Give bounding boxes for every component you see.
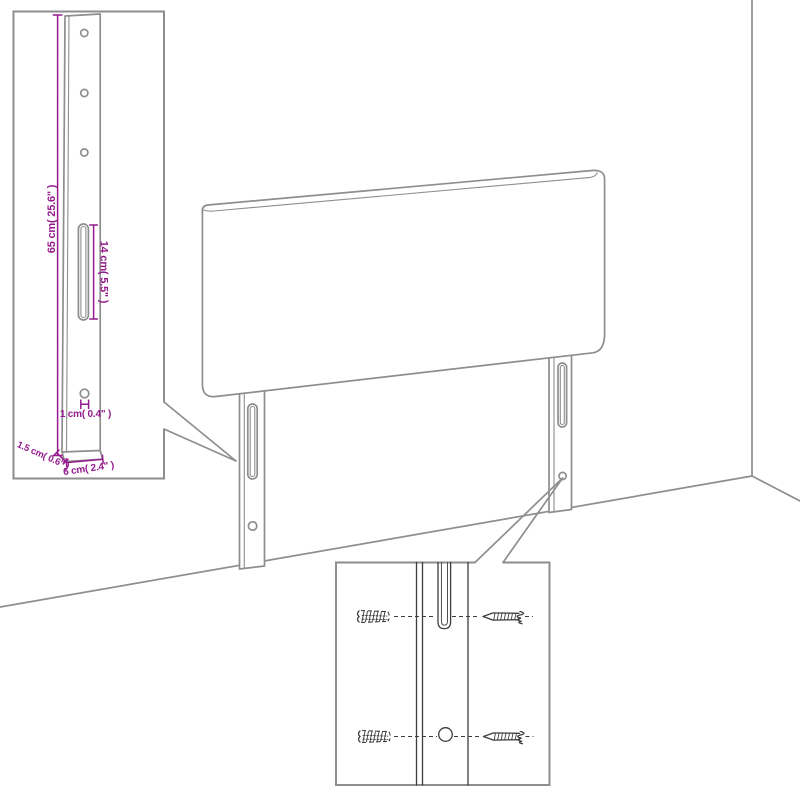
mount-slot-outline [438,563,451,629]
dimension-width: 6 cm( 2.4" ) [63,455,115,478]
panel-outline [202,170,604,396]
mount-hole [439,728,453,742]
height-label: 65 cm( 25.6" ) [46,184,58,253]
headboard-left-leg [240,384,265,569]
dimension-leg-height: 65 cm( 25.6" ) [46,15,62,456]
inset-leg-hole-2 [81,89,88,96]
inset-leg-drawing [62,14,103,462]
mount-detail-inset [336,563,550,786]
diagram-canvas: 65 cm( 25.6" ) 14 cm( 5.5" ) 1 cm( 0.4" … [0,0,800,800]
right-callout-wedge [475,478,563,563]
left-callout-wedge [164,402,236,461]
headboard-panel [202,170,604,396]
inset-leg-slot [78,224,88,320]
inset-leg-slot-inner [81,227,86,318]
mount-slot-inner-outline [441,563,447,626]
inset-leg-hole-3 [81,149,88,156]
wall-corner-line [752,0,800,501]
hole-dimension-bracket [81,400,89,410]
wall-plug-bottom [359,731,391,743]
hole-label: 1 cm( 0.4" ) [60,409,111,420]
inset-leg-hole-1 [81,29,88,36]
leg-detail-inset: 65 cm( 25.6" ) 14 cm( 5.5" ) 1 cm( 0.4" … [14,12,165,479]
callout-lines-right [475,478,563,563]
screw-top [483,612,533,624]
screw-bottom [484,732,534,744]
diagram-page: 65 cm( 25.6" ) 14 cm( 5.5" ) 1 cm( 0.4" … [0,0,800,800]
mount-leg-strip-lines [417,563,469,786]
mount-inset-border [336,563,550,786]
dimension-hole: 1 cm( 0.4" ) [60,400,111,421]
callout-lines-left [164,402,236,461]
inset-leg-bottom-hole [80,389,89,398]
slot-label: 14 cm( 5.5" ) [98,241,110,304]
wall-plug-top [358,611,390,623]
slot-dimension-line [89,225,98,319]
inset-leg-crease [67,16,70,452]
floor-line [0,476,752,607]
